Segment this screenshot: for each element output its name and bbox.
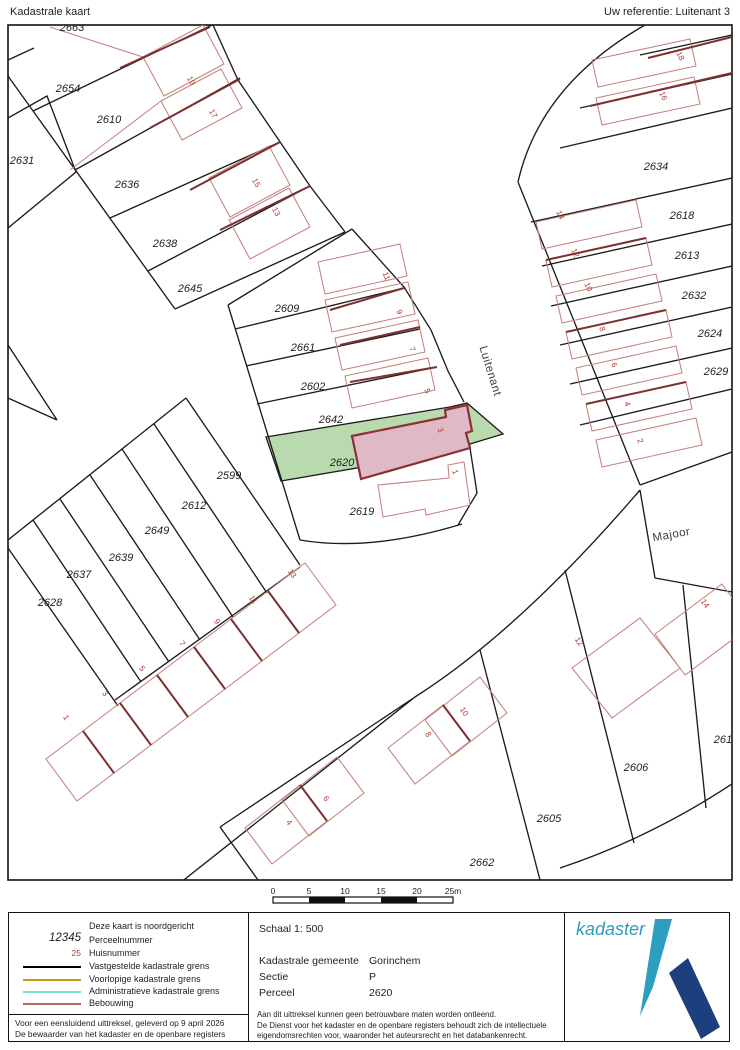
- detail-sectie-value: P: [369, 971, 376, 983]
- legend-line-bebouwing-swatch: [23, 1003, 81, 1005]
- detail-perceel-value: 2620: [369, 987, 392, 999]
- issued-line-1: Voor een eensluidend uittreksel, gelever…: [15, 1018, 224, 1028]
- parcel-number-label: 2663: [59, 22, 85, 34]
- detail-gemeente-label: Kadastrale gemeente: [259, 955, 359, 967]
- scalebar-tick-label: 25m: [445, 886, 462, 896]
- legend-house-sample: 25: [31, 948, 81, 958]
- parcel-number-label: 2602: [300, 381, 325, 393]
- scalebar-tick-label: 20: [412, 886, 422, 896]
- scalebar-tick-label: 10: [340, 886, 350, 896]
- parcel-number-label: 2619: [349, 506, 374, 518]
- cadastral-extract-page: { "header": { "title": "Kadastrale kaart…: [0, 0, 740, 1050]
- legend-line-administratief-label: Administratieve kadastrale grens: [89, 986, 220, 996]
- parcel-number-label: 2606: [623, 762, 649, 774]
- legend-parcel-sample: 12345: [31, 932, 81, 944]
- scalebar-seg-1: [309, 897, 345, 903]
- scale-text: Schaal 1: 500: [259, 923, 323, 935]
- legend-house-label: Huisnummer: [89, 948, 140, 958]
- parcel-number-label: 2637: [66, 569, 92, 581]
- parcel-number-label: 2610: [96, 114, 122, 126]
- scalebar-seg-2: [381, 897, 417, 903]
- scalebar: 0510152025m: [271, 886, 462, 903]
- parcel-number-label: 2642: [318, 414, 343, 426]
- parcel-number-label: 2645: [177, 283, 203, 295]
- parcel-number-label: 2612: [181, 500, 206, 512]
- legend-line-vastgesteld-swatch: [23, 966, 81, 968]
- cadastral-map: 2663265426102631263626382645260926612602…: [0, 0, 740, 910]
- detail-gemeente-value: Gorinchem: [369, 955, 420, 967]
- disclaimer-line-3: eigendomsrechten voor, waaronder het aut…: [257, 1031, 547, 1042]
- legend-parcel-label: Perceelnummer: [89, 935, 153, 945]
- parcel-number-label: 2662: [469, 857, 494, 869]
- kadaster-logo: kadaster: [566, 915, 730, 1039]
- parcel-number-label: 2616: [713, 734, 739, 746]
- parcel-number-label: 2632: [681, 290, 706, 302]
- parcel-number-label: 2634: [643, 161, 668, 173]
- scalebar-tick-label: 0: [271, 886, 276, 896]
- legend-line-administratief-swatch: [23, 991, 81, 993]
- detail-sectie-label: Sectie: [259, 971, 288, 983]
- footer-panel: Deze kaart is noordgericht 12345 Perceel…: [8, 912, 730, 1042]
- detail-perceel-label: Perceel: [259, 987, 295, 999]
- parcel-number-label: 2629: [703, 366, 728, 378]
- scalebar-labels: 0510152025m: [271, 886, 462, 896]
- parcel-number-label: 2631: [9, 155, 34, 167]
- parcel-number-label: 2605: [536, 813, 562, 825]
- legend-line-voorlopig-swatch: [23, 979, 81, 981]
- legend-north-note: Deze kaart is noordgericht: [89, 921, 194, 931]
- parcel-number-label: 2636: [114, 179, 140, 191]
- issued-line-2: De bewaarder van het kadaster en de open…: [15, 1029, 225, 1039]
- disclaimer-line-1: Aan dit uittreksel kunnen geen betrouwba…: [257, 1010, 547, 1021]
- scalebar-tick-label: 5: [307, 886, 312, 896]
- parcel-number-label: 2618: [669, 210, 695, 222]
- footer-divider-1: [248, 913, 249, 1041]
- parcel-number-label: 2649: [144, 525, 169, 537]
- parcel-number-label: 2639: [108, 552, 133, 564]
- legend-divider: [9, 1014, 248, 1015]
- parcel-number-label: 2628: [37, 597, 63, 609]
- parcel-number-label: 2638: [152, 238, 178, 250]
- parcel-number-label: 2620: [329, 457, 355, 469]
- parcel-number-label: 2609: [274, 303, 299, 315]
- legend-line-voorlopig-label: Voorlopige kadastrale grens: [89, 974, 201, 984]
- scalebar-frame: [273, 897, 453, 903]
- parcel-number-label: 2599: [216, 470, 241, 482]
- disclaimer-line-2: De Dienst voor het kadaster en de openba…: [257, 1021, 547, 1032]
- legend-line-bebouwing-label: Bebouwing: [89, 998, 134, 1008]
- kadaster-logo-text: kadaster: [576, 919, 645, 940]
- parcel-number-label: 2613: [674, 250, 700, 262]
- parcel-number-label: 2661: [290, 342, 315, 354]
- disclaimer-text: Aan dit uittreksel kunnen geen betrouwba…: [257, 1010, 547, 1042]
- logo-bar-shape: [669, 958, 720, 1039]
- parcel-number-label: 2654: [55, 83, 80, 95]
- legend-line-vastgesteld-label: Vastgestelde kadastrale grens: [89, 961, 209, 971]
- parcel-number-label: 2624: [697, 328, 722, 340]
- scalebar-tick-label: 15: [376, 886, 386, 896]
